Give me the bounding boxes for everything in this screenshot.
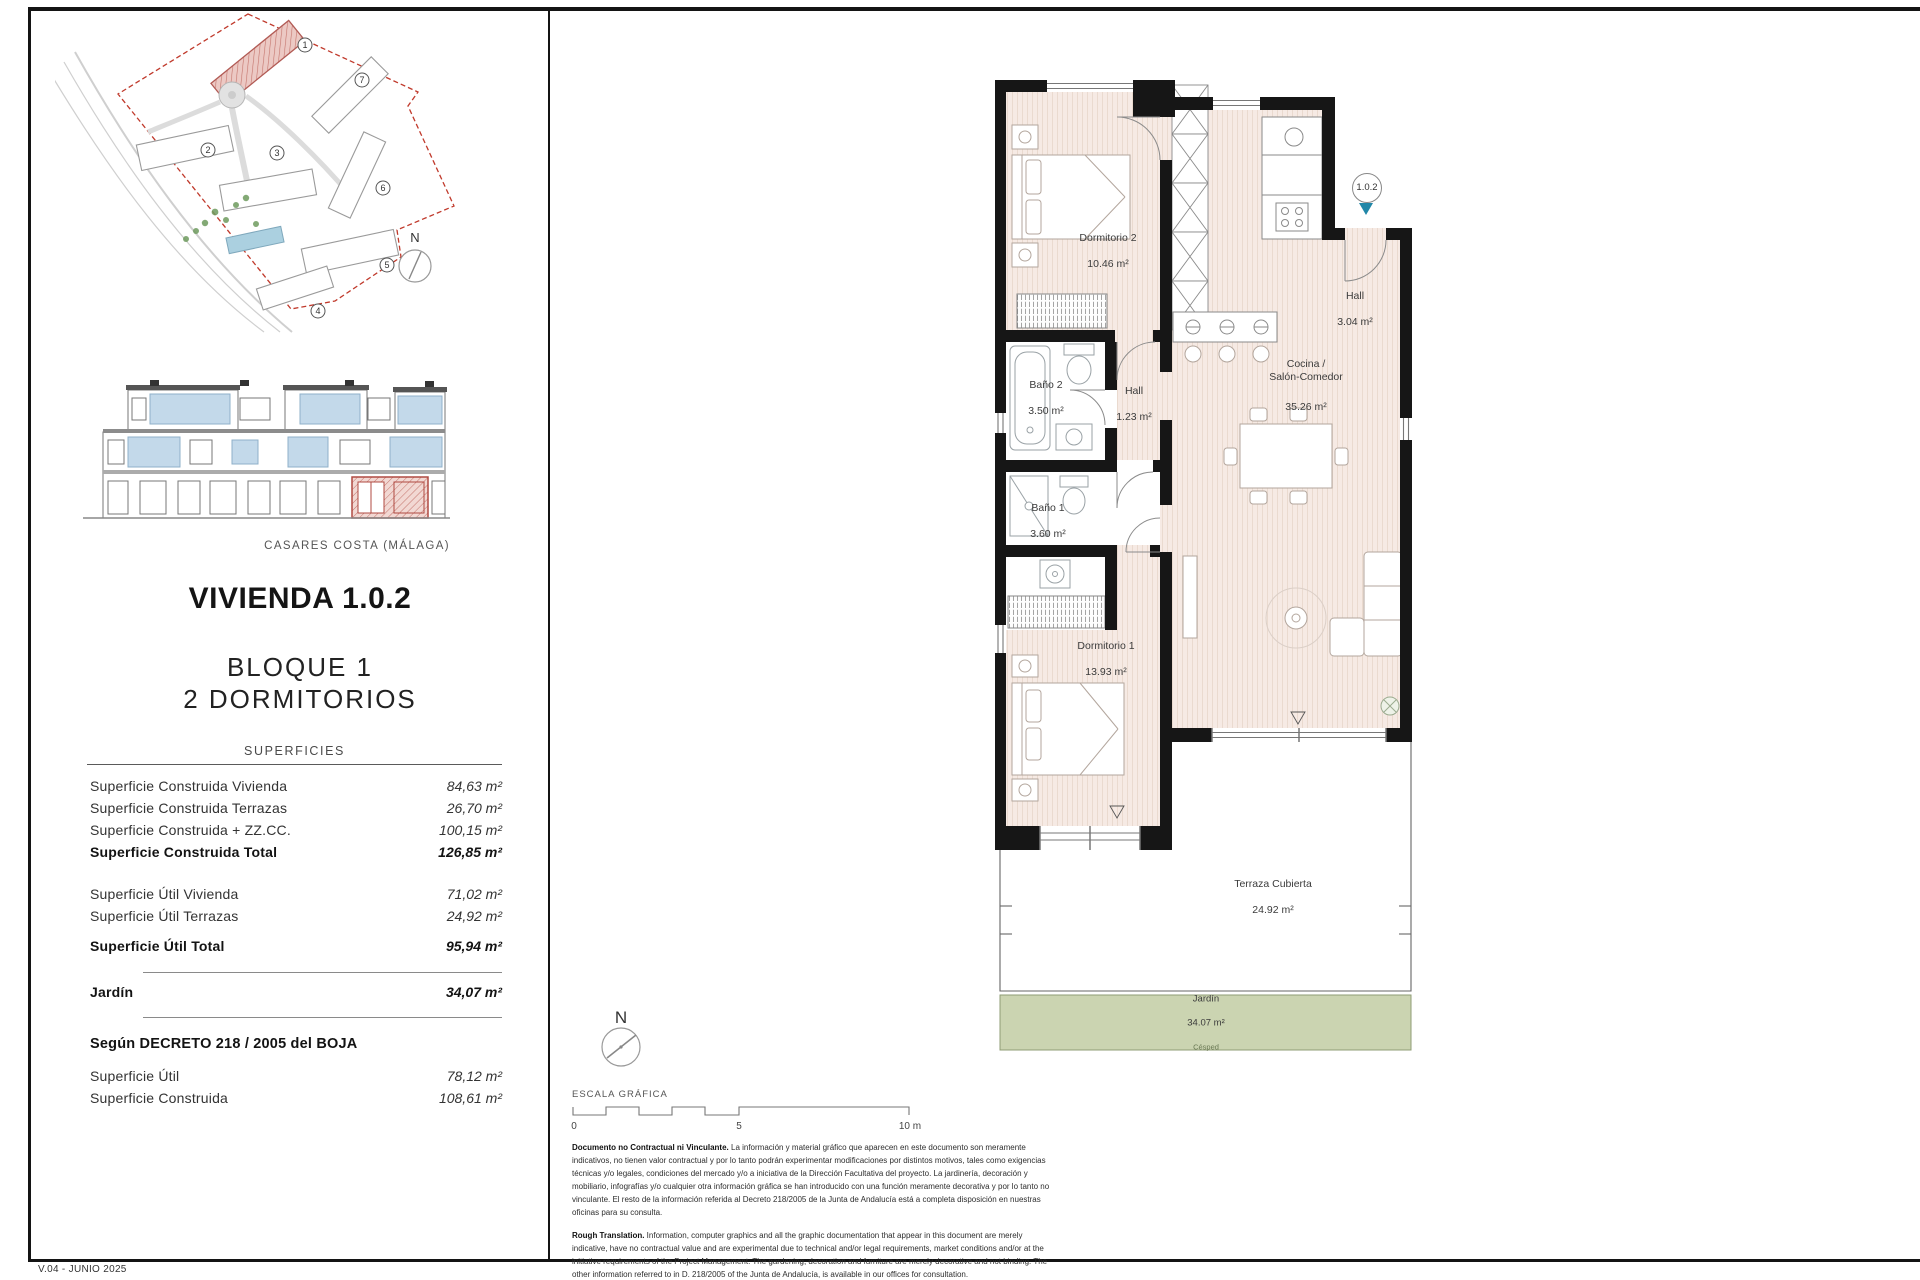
room-name: Terraza Cubierta: [1218, 878, 1328, 891]
divider-line: [548, 7, 550, 1259]
surfaces-useful-table: Superficie Útil Vivienda 71,02 m² Superf…: [90, 886, 502, 960]
row-value: 100,15 m²: [439, 822, 502, 838]
row-value: 108,61 m²: [439, 1090, 502, 1106]
row-label: Superficie Construida Terrazas: [90, 800, 287, 816]
surfaces-rule-top: [87, 764, 502, 765]
scale-label: ESCALA GRÁFICA: [572, 1089, 668, 1100]
north-label: N: [615, 1008, 627, 1027]
disclaimer-en-lead: Rough Translation.: [572, 1231, 644, 1240]
table-row: Superficie Útil 78,12 m²: [90, 1068, 502, 1090]
building-number: 5: [384, 260, 389, 270]
room-area: 24.92 m²: [1218, 905, 1328, 918]
kitchen-counter: [1262, 117, 1322, 239]
room-label-hall-entry: Hall 3.04 m²: [1300, 277, 1410, 343]
unit-marker: 1.0.2: [1352, 173, 1382, 203]
room-label-terraza: Terraza Cubierta 24.92 m²: [1218, 865, 1328, 931]
room-label-hall-inner: Hall 1.23 m²: [1079, 372, 1189, 438]
table-row: Superficie Construida Vivienda 84,63 m²: [90, 778, 502, 800]
building-number: 7: [359, 75, 364, 85]
rule: [143, 972, 502, 973]
building-number: 6: [380, 183, 385, 193]
room-label-dormitorio2: Dormitorio 2 10.46 m²: [1053, 219, 1163, 285]
room-name: Hall: [1079, 385, 1189, 398]
room-area: 10.46 m²: [1053, 259, 1163, 272]
row-value: 126,85 m²: [438, 844, 502, 860]
plan-sheet: 1 2 3 4 5 6 7 N: [0, 0, 1920, 1280]
room-area: 3.04 m²: [1300, 317, 1410, 330]
row-label: Superficie Construida Vivienda: [90, 778, 287, 794]
north-compass-icon: N: [602, 1008, 640, 1066]
table-row: Superficie Útil Terrazas 24,92 m²: [90, 908, 502, 930]
version-label: V.04 - JUNIO 2025: [38, 1264, 127, 1275]
floor-plan: Dormitorio 2 10.46 m² Baño 2 3.50 m² Hal…: [990, 72, 1420, 1057]
roundabout-center: [228, 91, 236, 99]
room-name: Hall: [1300, 290, 1410, 303]
disclaimer-es: Documento no Contractual ni Vinculante. …: [572, 1142, 1052, 1220]
room-area: 1.23 m²: [1079, 412, 1189, 425]
room-name: Dormitorio 1: [1051, 640, 1161, 653]
room-label-bano1: Baño 1 3.60 m²: [993, 489, 1103, 555]
table-row: Superficie Útil Vivienda 71,02 m²: [90, 886, 502, 908]
room-area: 3.60 m²: [993, 529, 1103, 542]
block-subtitle: BLOQUE 1: [88, 652, 512, 683]
elevation-unit-highlight: [352, 477, 428, 518]
row-label: Superficie Construida Total: [90, 844, 277, 860]
building-number: 3: [274, 148, 279, 158]
room-name: Baño 1: [993, 502, 1103, 515]
storage-column: [1172, 85, 1208, 330]
row-value: 34,07 m²: [446, 984, 502, 1000]
site-buildings: [136, 20, 398, 309]
location-label: CASARES COSTA (MÁLAGA): [150, 540, 450, 552]
table-row: Superficie Construida Terrazas 26,70 m²: [90, 800, 502, 822]
room-area: 13.93 m²: [1051, 667, 1161, 680]
laundry-washer-icon: [1040, 560, 1070, 588]
north-label: N: [410, 230, 419, 245]
row-label: Jardín: [90, 984, 133, 1000]
row-value: 26,70 m²: [447, 800, 502, 816]
border-left: [28, 7, 31, 1262]
decree-header: Según DECRETO 218 / 2005 del BOJA: [90, 1036, 502, 1052]
row-label: Superficie Útil Terrazas: [90, 908, 239, 924]
row-label: Superficie Construida + ZZ.CC.: [90, 822, 291, 838]
row-label: Superficie Útil: [90, 1068, 179, 1084]
room-name: Cocina / Salón-Comedor: [1251, 358, 1361, 384]
scale-tick: 10 m: [899, 1121, 921, 1132]
building-number: 4: [315, 306, 320, 316]
disclaimer-en: Rough Translation. Information, computer…: [572, 1230, 1052, 1280]
table-row: Superficie Construida + ZZ.CC. 100,15 m²: [90, 822, 502, 844]
row-value: 95,94 m²: [446, 938, 502, 954]
row-label: Superficie Útil Total: [90, 938, 225, 954]
room-label-cocina: Cocina / Salón-Comedor 35.26 m²: [1251, 345, 1361, 427]
surfaces-header: SUPERFICIES: [87, 744, 502, 758]
building-elevation: [83, 380, 450, 522]
room-label-dormitorio1: Dormitorio 1 13.93 m²: [1051, 627, 1161, 693]
row-value: 24,92 m²: [447, 908, 502, 924]
decree-table: Superficie Útil 78,12 m² Superficie Cons…: [90, 1068, 502, 1112]
building-number: 1: [302, 40, 307, 50]
row-value: 84,63 m²: [447, 778, 502, 794]
rule: [143, 1017, 502, 1018]
garden-row: Jardín 34,07 m²: [90, 984, 502, 1006]
row-value: 71,02 m²: [447, 886, 502, 902]
disclaimer-en-body: Information, computer graphics and all t…: [572, 1231, 1047, 1279]
room-name: Dormitorio 2: [1053, 232, 1163, 245]
page-title: VIVIENDA 1.0.2: [88, 582, 512, 616]
scale-tick: 0: [571, 1121, 577, 1132]
entry-arrow-icon: [1359, 203, 1373, 215]
table-row: Superficie Construida 108,61 m²: [90, 1090, 502, 1112]
disclaimer-es-body: La información y material gráfico que ap…: [572, 1143, 1049, 1217]
building-number: 2: [205, 145, 210, 155]
scale-bar: [573, 1107, 909, 1115]
row-value: 78,12 m²: [447, 1068, 502, 1084]
row-label: Superficie Construida: [90, 1090, 228, 1106]
table-row-total: Superficie Útil Total 95,94 m²: [90, 938, 502, 960]
room-area: 35.26 m²: [1251, 401, 1361, 414]
table-row-total: Superficie Construida Total 126,85 m²: [90, 844, 502, 866]
disclaimer-es-lead: Documento no Contractual ni Vinculante.: [572, 1143, 729, 1152]
bedrooms-subtitle: 2 DORMITORIOS: [88, 684, 512, 715]
site-plan: 1 2 3 4 5 6 7 N: [55, 8, 460, 340]
surfaces-built-table: Superficie Construida Vivienda 84,63 m² …: [90, 778, 502, 866]
site-pool: [226, 226, 284, 253]
north-compass-icon: N: [399, 230, 431, 282]
row-label: Superficie Útil Vivienda: [90, 886, 239, 902]
scale-tick: 5: [736, 1121, 742, 1132]
disclaimer-block: Documento no Contractual ni Vinculante. …: [572, 1142, 1052, 1280]
